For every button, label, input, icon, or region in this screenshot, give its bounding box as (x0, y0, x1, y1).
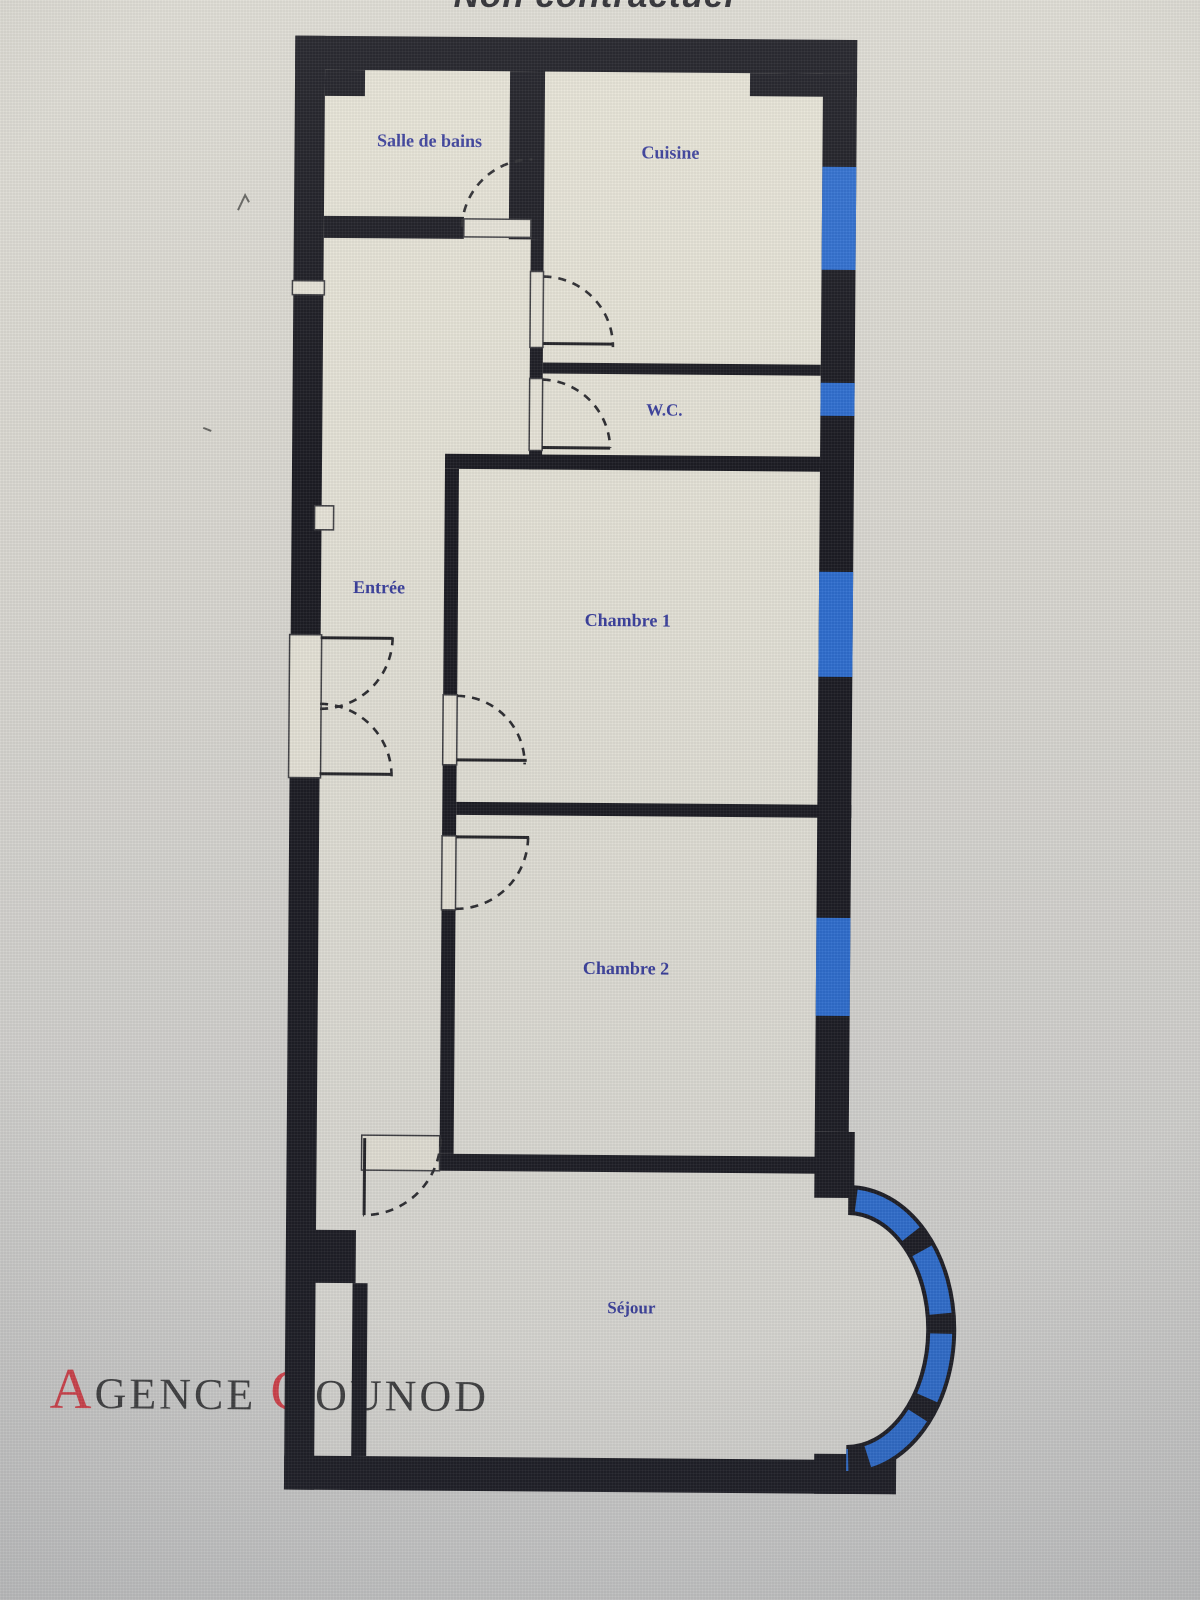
wall-left-3 (284, 778, 320, 1490)
floor-plan-wrapper: AGENCE GOUNOD (0, 0, 1200, 1605)
wc-window (820, 383, 854, 416)
opening-bedroom1-door (443, 695, 458, 765)
opening-livingroom-door (361, 1135, 439, 1171)
wall-closet (351, 1283, 367, 1456)
opening-left-notch (292, 281, 324, 295)
wall-bedroom1-top (445, 454, 820, 472)
label-wc: W.C. (646, 400, 682, 419)
opening-bedroom2-door (442, 836, 457, 910)
label-sejour: Séjour (607, 1298, 656, 1317)
wall-hall-bedroom-2 (442, 764, 457, 837)
label-entree: Entrée (353, 577, 405, 597)
kitchen-window (822, 167, 857, 270)
wall-wc-top (543, 363, 821, 376)
wall-bottom (284, 1456, 854, 1494)
label-salle-de-bains: Salle de bains (377, 130, 482, 151)
wall-entry-pilaster (306, 1230, 356, 1283)
photo-artifacts (203, 195, 249, 431)
entrance-door-leaf-top (321, 638, 393, 639)
label-chambre-1: Chambre 1 (585, 610, 671, 631)
wall-bathroom-bottom (324, 216, 464, 239)
label-cuisine: Cuisine (641, 142, 699, 162)
bedroom1-window (818, 572, 853, 677)
bedroom1-door-leaf (457, 760, 527, 761)
wall-top (295, 36, 857, 74)
pen-mark (238, 195, 249, 210)
wall-livingroom-top (439, 1154, 818, 1174)
wall-hall-bedroom-1 (443, 469, 459, 696)
wall-hall-bedroom-3 (440, 909, 456, 1154)
plan-title-clipped: Non contractuel (0, 0, 1200, 18)
wall-left-1 (293, 36, 325, 281)
wall-bathroom-kitchen (509, 71, 545, 239)
livingroom-door-leaf (364, 1138, 365, 1215)
pen-dot (203, 428, 211, 431)
opening-left-niche (314, 506, 333, 530)
entrance-door-leaf-bottom (320, 774, 392, 775)
opening-kitchen-door (530, 271, 544, 347)
opening-wc-door (529, 378, 543, 450)
watermark-initial-a: A (49, 1356, 94, 1421)
watermark-gounod: OUNOD (315, 1371, 489, 1421)
wall-hall-kitchen-1 (531, 239, 544, 272)
plan-title-text: Non contractuel (454, 0, 735, 16)
photo-background: Non contractuel AGENCE GOUNOD (0, 0, 1200, 1600)
kitchen-door-leaf (543, 344, 613, 345)
wall-left-2 (291, 295, 324, 635)
floor-plan: AGENCE GOUNOD (0, 0, 1200, 1605)
wall-hall-kitchen-2 (530, 346, 543, 379)
bedroom2-window (816, 918, 851, 1016)
watermark-agence: GENCE (94, 1369, 270, 1419)
label-chambre-2: Chambre 2 (583, 958, 669, 979)
wc-door-leaf (542, 448, 610, 449)
wall-bathroom-top-step (325, 70, 365, 96)
opening-bathroom-door (464, 219, 531, 238)
bedroom2-door-leaf (456, 837, 529, 838)
opening-entrance (289, 635, 322, 778)
